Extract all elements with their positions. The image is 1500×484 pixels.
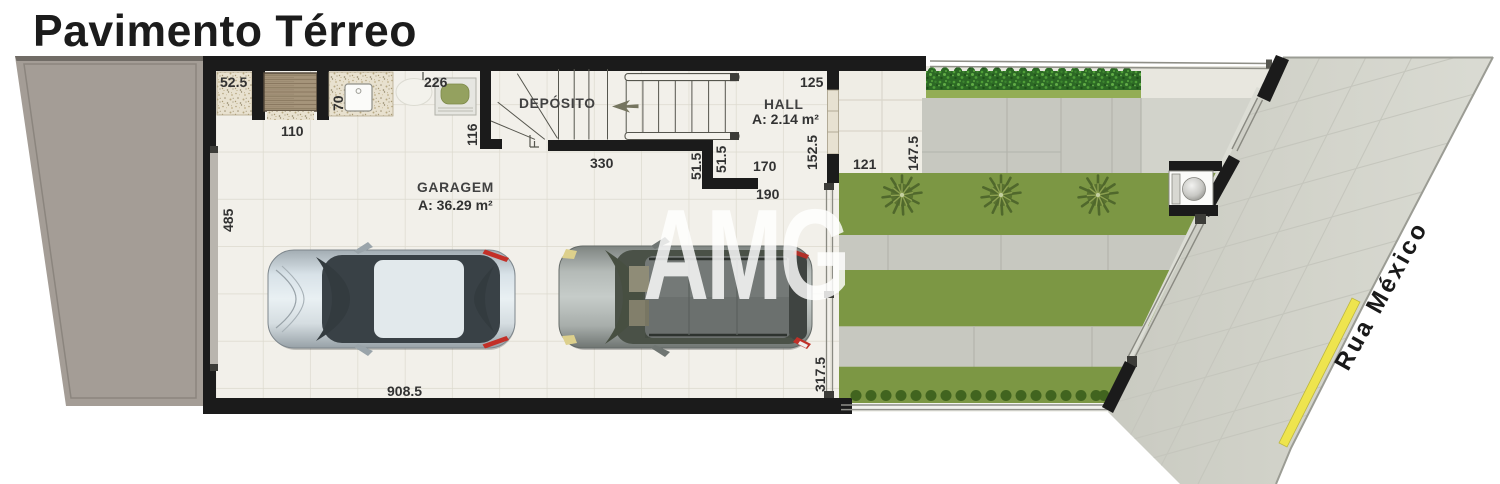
svg-text:121: 121	[853, 156, 877, 172]
svg-text:152.5: 152.5	[804, 135, 820, 170]
svg-text:110: 110	[281, 123, 304, 139]
svg-text:A: 36.29 m²: A: 36.29 m²	[418, 197, 493, 213]
svg-text:51.5: 51.5	[713, 146, 729, 173]
svg-text:116: 116	[464, 123, 480, 146]
svg-text:317.5: 317.5	[812, 357, 828, 392]
svg-text:908.5: 908.5	[387, 383, 422, 399]
svg-text:A: 2.14 m²: A: 2.14 m²	[752, 111, 819, 127]
svg-text:190: 190	[756, 186, 780, 202]
svg-text:125: 125	[800, 74, 824, 90]
svg-text:226: 226	[424, 74, 448, 90]
svg-text:147.5: 147.5	[905, 136, 921, 171]
svg-text:Pavimento Térreo: Pavimento Térreo	[33, 7, 417, 56]
svg-text:52.5: 52.5	[220, 74, 247, 90]
svg-text:51.5: 51.5	[688, 153, 704, 180]
svg-text:DEPÓSITO: DEPÓSITO	[519, 94, 596, 111]
svg-text:485: 485	[220, 208, 236, 232]
svg-text:HALL: HALL	[764, 97, 804, 112]
svg-text:170: 170	[753, 158, 777, 174]
svg-text:AMG: AMG	[643, 182, 848, 326]
svg-text:70: 70	[330, 95, 346, 111]
svg-text:GARAGEM: GARAGEM	[417, 180, 494, 195]
svg-text:330: 330	[590, 155, 614, 171]
